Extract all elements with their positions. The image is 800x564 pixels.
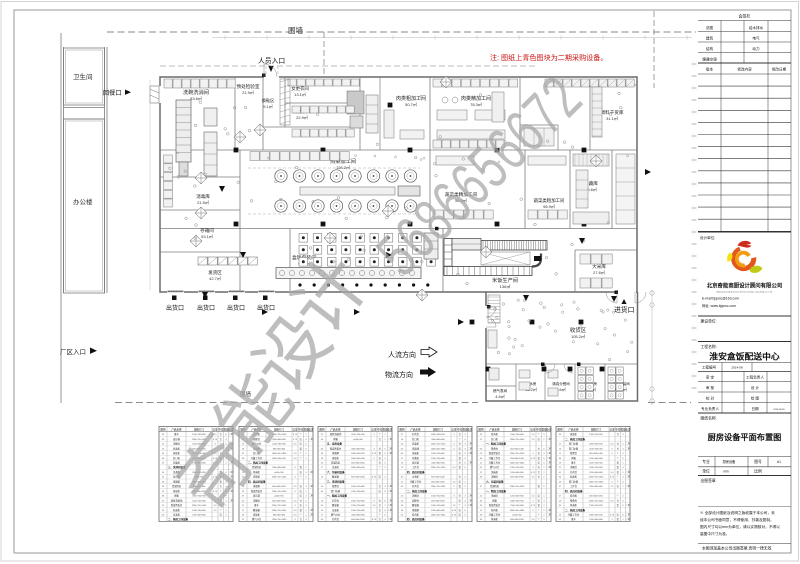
svg-text:备注: 备注 xyxy=(625,427,631,431)
svg-text:21.5㎡: 21.5㎡ xyxy=(197,199,209,205)
svg-text:1500×700×800: 1500×700×800 xyxy=(431,457,445,460)
svg-text:网址: www.bjqnsc.com: 网址: www.bjqnsc.com xyxy=(702,303,736,308)
svg-text:规格尺寸: 规格尺寸 xyxy=(353,427,364,431)
svg-text:备注: 备注 xyxy=(387,427,393,431)
svg-text:2000×800×800: 2000×800×800 xyxy=(351,447,365,450)
svg-text:米饭生产间: 米饭生产间 xyxy=(492,276,518,284)
svg-text:1500×500×1800: 1500×500×1800 xyxy=(431,447,446,450)
svg-text:9.1㎡: 9.1㎡ xyxy=(263,103,273,109)
svg-text:图例: 图例 xyxy=(478,427,484,431)
svg-text:厨房设备: 厨房设备 xyxy=(723,459,737,464)
svg-text:2200×750×1450: 2200×750×1450 xyxy=(589,480,604,483)
svg-text:4.6㎡: 4.6㎡ xyxy=(495,393,505,399)
svg-text:2200×750×1450: 2200×750×1450 xyxy=(510,438,525,441)
svg-text:厂区入口: 厂区入口 xyxy=(60,348,86,356)
svg-text:2000×800×800: 2000×800×800 xyxy=(431,438,445,441)
svg-text:功率: 功率 xyxy=(530,427,536,431)
svg-text:E-mail:bjqnsc@163.com: E-mail:bjqnsc@163.com xyxy=(702,297,739,301)
svg-text:五、库房设备: 五、库房设备 xyxy=(327,442,343,446)
svg-text:二、热加工间设备: 二、热加工间设备 xyxy=(565,508,586,512)
svg-text:肉类精加工间: 肉类精加工间 xyxy=(461,95,491,102)
svg-text:存箱间: 存箱间 xyxy=(200,227,214,234)
svg-text:备注: 备注 xyxy=(308,427,314,431)
svg-text:650×600×1400: 650×600×1400 xyxy=(431,476,445,479)
svg-text:96.9㎡: 96.9㎡ xyxy=(543,203,555,209)
svg-text:42.7㎡: 42.7㎡ xyxy=(209,275,221,281)
svg-text:600×600×1850: 600×600×1850 xyxy=(510,476,524,479)
svg-text:一、粗加工间设备: 一、粗加工间设备 xyxy=(327,494,348,498)
svg-text:给水排水: 给水排水 xyxy=(749,25,764,30)
svg-text:1500×700×800: 1500×700×800 xyxy=(431,504,445,507)
svg-text:修改日期: 修改日期 xyxy=(772,67,787,72)
svg-text:2200×750×1450: 2200×750×1450 xyxy=(272,518,287,521)
svg-text:北京奇能商厨设计顾问有限公司: 北京奇能商厨设计顾问有限公司 xyxy=(707,282,782,290)
svg-text:22.9㎡: 22.9㎡ xyxy=(296,114,308,120)
svg-text:1500×700×800: 1500×700×800 xyxy=(431,452,445,455)
svg-text:一、粗加工间设备: 一、粗加工间设备 xyxy=(486,442,507,446)
svg-text:出图签章: 出图签章 xyxy=(701,478,716,483)
svg-text:1500×700×800: 1500×700×800 xyxy=(351,504,365,507)
svg-text:本图须加盖本公司出图签章,否则一律无效: 本图须加盖本公司出图签章,否则一律无效 xyxy=(702,546,772,551)
svg-text:图例: 图例 xyxy=(399,427,405,431)
svg-text:1200×760×850: 1200×760×850 xyxy=(351,490,365,493)
svg-text:规格尺寸: 规格尺寸 xyxy=(512,427,523,431)
svg-text:φ500×900: φ500×900 xyxy=(512,514,522,517)
svg-text:回餐口: 回餐口 xyxy=(103,89,122,97)
svg-text:备注: 备注 xyxy=(546,427,552,431)
svg-text:13.1㎡: 13.1㎡ xyxy=(294,91,306,97)
svg-text:建设单位:: 建设单位: xyxy=(701,319,717,324)
svg-text:校 对: 校 对 xyxy=(706,396,715,401)
svg-text:1200×600×800: 1200×600×800 xyxy=(589,457,603,460)
svg-text:1500×700×800: 1500×700×800 xyxy=(351,509,365,512)
svg-text:比例: 比例 xyxy=(754,469,762,474)
svg-text:规格尺寸: 规格尺寸 xyxy=(433,427,444,431)
svg-text:出货口: 出货口 xyxy=(197,304,215,312)
svg-text:六、包装间设备: 六、包装间设备 xyxy=(486,479,504,483)
svg-text:1800×900×950: 1800×900×950 xyxy=(510,499,524,502)
svg-text:50.7㎡: 50.7㎡ xyxy=(405,101,417,107)
svg-text:600×600×1850: 600×600×1850 xyxy=(589,495,603,498)
svg-text:650×600×1400: 650×600×1400 xyxy=(510,457,524,460)
svg-text:Beijing Qineng Business Kitche: Beijing Qineng Business Kitchen Design C… xyxy=(717,291,773,294)
svg-text:四、面点间设备: 四、面点间设备 xyxy=(407,470,425,474)
svg-text:1800×900×950: 1800×900×950 xyxy=(351,452,365,455)
svg-text:三、洗消间设备: 三、洗消间设备 xyxy=(327,479,345,483)
svg-text:2200×750×1450: 2200×750×1450 xyxy=(431,485,446,488)
svg-text:2014-08-26: 2014-08-26 xyxy=(773,409,785,411)
svg-text:1800×900×950: 1800×900×950 xyxy=(351,466,365,469)
svg-text:1100×700×900: 1100×700×900 xyxy=(589,447,603,450)
svg-text:电气: 电气 xyxy=(752,36,760,41)
svg-text:φ500×900: φ500×900 xyxy=(274,495,284,498)
svg-text:2000×800×800: 2000×800×800 xyxy=(431,461,445,464)
svg-text:1500×700×800: 1500×700×800 xyxy=(351,485,365,488)
svg-text:人流方向: 人流方向 xyxy=(388,350,416,359)
svg-text:二、热加工间设备: 二、热加工间设备 xyxy=(407,489,428,493)
svg-text:修改内容: 修改内容 xyxy=(737,67,752,72)
svg-text:1200×600×800: 1200×600×800 xyxy=(510,495,524,498)
svg-text:1800×900×950: 1800×900×950 xyxy=(272,457,286,460)
svg-text:二、热加工间设备: 二、热加工间设备 xyxy=(565,437,586,441)
svg-text:78.3㎡: 78.3㎡ xyxy=(470,101,482,107)
svg-text:办公楼: 办公楼 xyxy=(73,197,93,206)
svg-text:绘 图: 绘 图 xyxy=(751,396,760,401)
svg-text:四、面点间设备: 四、面点间设备 xyxy=(565,489,583,493)
svg-text:会签栏: 会签栏 xyxy=(739,13,751,19)
svg-text:暖通空调: 暖通空调 xyxy=(702,57,717,62)
svg-text:版本: 版本 xyxy=(706,67,714,72)
svg-text:600×600×1850: 600×600×1850 xyxy=(351,518,365,521)
svg-text:产品名称: 产品名称 xyxy=(330,427,341,431)
svg-text:650×600×1400: 650×600×1400 xyxy=(510,447,524,450)
svg-text:1200×600×800: 1200×600×800 xyxy=(589,471,603,474)
svg-text:工程编号: 工程编号 xyxy=(702,365,717,370)
svg-text:专业负责人: 专业负责人 xyxy=(701,406,719,411)
svg-text:2200×750×1450: 2200×750×1450 xyxy=(272,476,287,479)
svg-text:2200×750×1450: 2200×750×1450 xyxy=(272,504,287,507)
svg-text:1200×600×800: 1200×600×800 xyxy=(510,471,524,474)
svg-text:厨房设备平面布置图: 厨房设备平面布置图 xyxy=(708,432,782,442)
svg-text:出货口: 出货口 xyxy=(166,304,184,312)
svg-text:物流方向: 物流方向 xyxy=(385,370,413,379)
svg-text:设 计: 设 计 xyxy=(751,385,760,390)
svg-text:出货口: 出货口 xyxy=(257,304,275,312)
svg-text:2000×800×800: 2000×800×800 xyxy=(351,514,365,517)
svg-text:产品名称: 产品名称 xyxy=(489,427,500,431)
svg-text:mm: mm xyxy=(723,470,729,474)
svg-text:600×600×1850: 600×600×1850 xyxy=(431,480,445,483)
svg-text:功率: 功率 xyxy=(451,427,457,431)
svg-text:审 核: 审 核 xyxy=(706,385,715,390)
svg-text:消毒库: 消毒库 xyxy=(196,193,210,200)
svg-text:产品名称: 产品名称 xyxy=(410,427,421,431)
svg-text:工程名称:: 工程名称: xyxy=(701,344,717,349)
svg-text:卫生间: 卫生间 xyxy=(73,72,93,81)
svg-text:发货区: 发货区 xyxy=(208,269,222,276)
svg-text:2000×800×800: 2000×800×800 xyxy=(272,466,286,469)
svg-text:800×800×800: 800×800×800 xyxy=(273,514,286,517)
svg-text:洗碗洗消间: 洗碗洗消间 xyxy=(183,88,209,96)
svg-text:日期: 日期 xyxy=(751,406,759,411)
svg-text:图纸名称:: 图纸名称: xyxy=(701,416,717,421)
svg-text:600×600×1850: 600×600×1850 xyxy=(431,499,445,502)
svg-text:结构: 结构 xyxy=(706,46,714,51)
svg-text:21.9㎡: 21.9㎡ xyxy=(242,89,254,95)
svg-text:图例: 图例 xyxy=(319,427,325,431)
svg-text:1800×900×950: 1800×900×950 xyxy=(351,457,365,460)
svg-text:136㎡: 136㎡ xyxy=(500,283,511,289)
svg-text:经本公司书面同意，不得使用、抄袭及复制。: 经本公司书面同意，不得使用、抄袭及复制。 xyxy=(700,517,774,522)
svg-text:产品名称: 产品名称 xyxy=(568,427,579,431)
svg-text:1500×700×800: 1500×700×800 xyxy=(431,495,445,498)
svg-text:蔬菜类粗加工间: 蔬菜类粗加工间 xyxy=(534,197,565,204)
svg-text:φ500×900: φ500×900 xyxy=(274,471,284,474)
svg-text:单位: 单位 xyxy=(702,469,710,474)
svg-text:1200×600×800: 1200×600×800 xyxy=(589,518,603,521)
svg-text:1100×700×900: 1100×700×900 xyxy=(351,433,365,436)
svg-text:600×600×1850: 600×600×1850 xyxy=(351,461,365,464)
svg-text:审 定: 审 定 xyxy=(706,375,715,380)
svg-text:1200×600×800: 1200×600×800 xyxy=(192,514,206,517)
svg-text:600×600×1850: 600×600×1850 xyxy=(272,499,286,502)
svg-text:600×600×1850: 600×600×1850 xyxy=(351,476,365,479)
svg-text:工程负责人: 工程负责人 xyxy=(746,375,764,380)
svg-text:四、面点间设备: 四、面点间设备 xyxy=(407,517,425,521)
svg-text:建筑: 建筑 xyxy=(706,36,714,41)
svg-text:φ500×900: φ500×900 xyxy=(353,438,363,441)
svg-text:83.6㎡: 83.6㎡ xyxy=(190,95,202,101)
svg-text:1500×700×800: 1500×700×800 xyxy=(510,433,524,436)
svg-text:2200×750×1450: 2200×750×1450 xyxy=(272,509,287,512)
svg-text:注: 图纸上青色图块为二期采购设备。: 注: 图纸上青色图块为二期采购设备。 xyxy=(490,53,607,62)
svg-text:1500×500×1800: 1500×500×1800 xyxy=(431,514,446,517)
svg-text:1500×500×1800: 1500×500×1800 xyxy=(510,461,525,464)
svg-text:换鞋区: 换鞋区 xyxy=(262,97,275,104)
svg-text:650×600×1400: 650×600×1400 xyxy=(589,452,603,455)
svg-text:1500×500×1800: 1500×500×1800 xyxy=(510,509,525,512)
svg-text:1200×760×850: 1200×760×850 xyxy=(589,433,603,436)
svg-text:备注: 备注 xyxy=(467,427,473,431)
svg-text:规格尺寸: 规格尺寸 xyxy=(591,427,602,431)
svg-text:收货区: 收货区 xyxy=(570,326,587,334)
svg-text:总图: 总图 xyxy=(706,25,714,30)
svg-text:图例: 图例 xyxy=(557,427,563,431)
svg-text:功率: 功率 xyxy=(371,427,377,431)
svg-text:1200×760×850: 1200×760×850 xyxy=(589,504,603,507)
svg-text:1800×900×950: 1800×900×950 xyxy=(431,433,445,436)
svg-text:图号: 图号 xyxy=(754,459,762,464)
svg-text:清真分餐间: 清真分餐间 xyxy=(552,381,570,386)
svg-text:专业: 专业 xyxy=(702,459,710,464)
svg-text:600×600×1850: 600×600×1850 xyxy=(272,485,286,488)
svg-text:图内尺寸均以mm为单位，请以实物核对，不得以: 图内尺寸均以mm为单位，请以实物核对，不得以 xyxy=(700,524,780,529)
svg-text:2200×750×1450: 2200×750×1450 xyxy=(510,452,525,455)
svg-text:2200×750×1450: 2200×750×1450 xyxy=(589,499,604,502)
svg-text:出货口: 出货口 xyxy=(227,304,245,312)
svg-text:1500×700×800: 1500×700×800 xyxy=(351,499,365,502)
svg-text:1200×600×800: 1200×600×800 xyxy=(431,509,445,512)
svg-text:燃气表间: 燃气表间 xyxy=(493,388,508,393)
svg-text:1200×760×850: 1200×760×850 xyxy=(510,466,524,469)
svg-text:128.2㎡: 128.2㎡ xyxy=(336,164,350,170)
svg-text:1100×700×900: 1100×700×900 xyxy=(589,461,603,464)
svg-text:图例: 图例 xyxy=(160,427,166,431)
svg-text:产品名称: 产品名称 xyxy=(171,427,182,431)
svg-text:一、粗加工间设备: 一、粗加工间设备 xyxy=(486,489,507,493)
svg-text:进货口: 进货口 xyxy=(614,305,634,314)
svg-text:2200×750×1450: 2200×750×1450 xyxy=(510,485,525,488)
svg-text:27.6㎡: 27.6㎡ xyxy=(593,269,605,275)
svg-text:2014-08: 2014-08 xyxy=(731,366,742,370)
svg-text:31.1㎡: 31.1㎡ xyxy=(606,115,618,121)
svg-text:围墙: 围墙 xyxy=(288,25,303,35)
svg-text:1800×900×950: 1800×900×950 xyxy=(589,514,603,517)
svg-text:600×600×1850: 600×600×1850 xyxy=(510,518,524,521)
svg-text:淮安盒饭配送中心: 淮安盒饭配送中心 xyxy=(709,351,780,362)
svg-text:1500×700×800: 1500×700×800 xyxy=(510,504,524,507)
svg-text:※ 全部设计图纸及说明之版权属于本公司，未: ※ 全部设计图纸及说明之版权属于本公司，未 xyxy=(700,510,775,515)
svg-text:动力: 动力 xyxy=(752,46,760,51)
svg-text:二、热加工间设备: 二、热加工间设备 xyxy=(168,517,189,521)
svg-text:量图中尺寸为准。: 量图中尺寸为准。 xyxy=(700,531,730,536)
svg-text:2200×750×1450: 2200×750×1450 xyxy=(272,490,287,493)
svg-text:105.2㎡: 105.2㎡ xyxy=(571,333,585,339)
svg-text:53.1㎡: 53.1㎡ xyxy=(201,233,213,239)
svg-text:调料干货库: 调料干货库 xyxy=(601,109,624,116)
svg-text:A1: A1 xyxy=(777,460,781,464)
svg-text:肉类粗加工间: 肉类粗加工间 xyxy=(396,95,426,102)
svg-text:1500×700×800: 1500×700×800 xyxy=(589,466,603,469)
svg-text:2200×750×1450: 2200×750×1450 xyxy=(589,476,604,479)
svg-text:2200×750×1450: 2200×750×1450 xyxy=(431,443,446,446)
svg-text:六、包装间设备: 六、包装间设备 xyxy=(327,470,345,474)
svg-text:2000×800×800: 2000×800×800 xyxy=(589,485,603,488)
svg-text:设计单位:: 设计单位: xyxy=(700,235,715,240)
svg-text:2200×750×1450: 2200×750×1450 xyxy=(431,466,446,469)
svg-text:人员入口: 人员入口 xyxy=(258,57,285,65)
svg-text:预处检验室: 预处检验室 xyxy=(237,83,260,90)
svg-text:功率: 功率 xyxy=(609,427,615,431)
svg-text:1800×900×950: 1800×900×950 xyxy=(589,443,603,446)
